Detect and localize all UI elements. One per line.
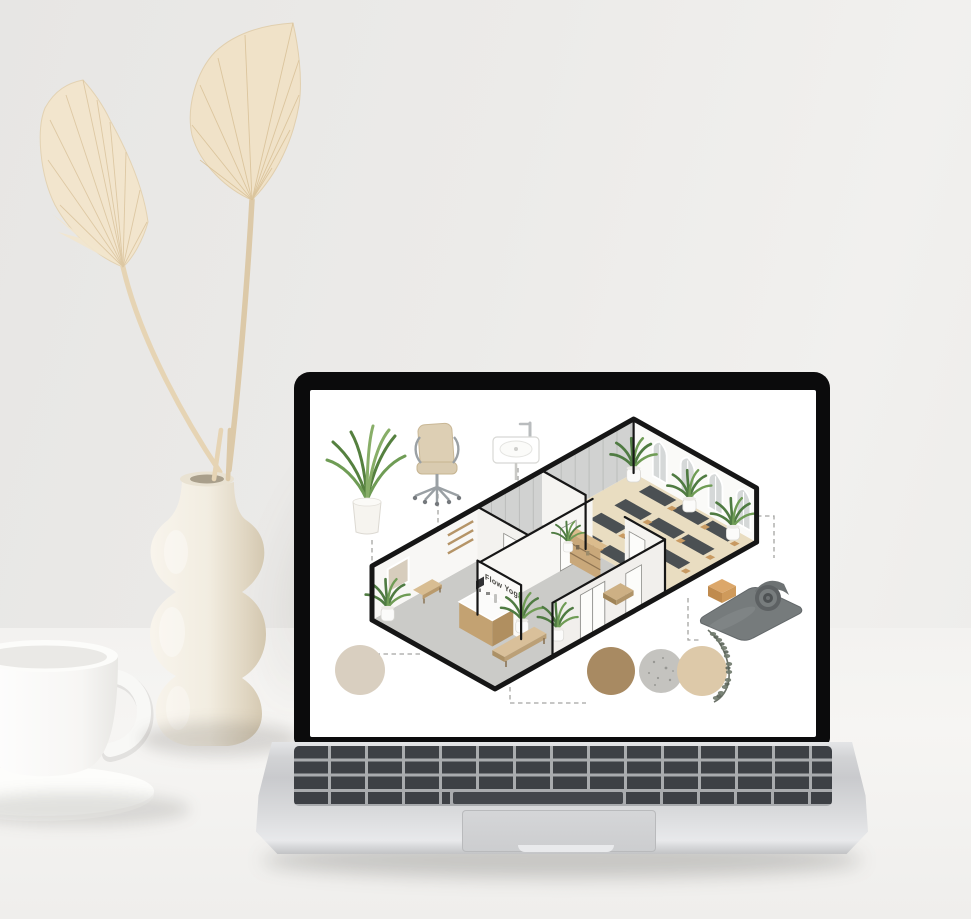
desk-scene: Flow Yoga	[0, 0, 971, 919]
spacebar-key	[453, 792, 623, 804]
arched-window	[653, 442, 667, 484]
arched-window	[709, 473, 723, 515]
dried-palm-leaves	[40, 23, 300, 472]
laptop-screen-bezel: Flow Yoga	[294, 372, 830, 746]
keyboard-keys	[626, 792, 832, 804]
palm-stem	[123, 267, 220, 472]
ceramic-vase	[150, 430, 266, 746]
swatch-sand-linen	[677, 646, 727, 696]
laptop-base	[256, 742, 868, 854]
arched-window	[737, 489, 751, 531]
keyboard-keys	[294, 792, 450, 804]
mug-body	[0, 656, 118, 776]
legend-office-chair	[413, 423, 461, 506]
coffee-mug	[0, 640, 154, 821]
palm-stem	[229, 200, 252, 470]
laptop-keyboard	[294, 746, 832, 806]
floor-plan-illustration: Flow Yoga	[310, 390, 816, 737]
palm-leaf-left	[40, 80, 148, 267]
swatch-oak-wood	[587, 647, 635, 695]
legend-wall-basin	[493, 423, 539, 480]
laptop-lid-notch	[518, 845, 614, 852]
swatch-terrazzo	[639, 649, 683, 693]
laptop-display: Flow Yoga	[310, 390, 816, 737]
keyboard-bottom-row	[294, 792, 832, 806]
swatch-cream-plaster	[335, 645, 385, 695]
palm-leaf-right	[190, 23, 300, 200]
keyboard-keys	[294, 746, 832, 792]
legend-potted-plant	[327, 426, 405, 534]
